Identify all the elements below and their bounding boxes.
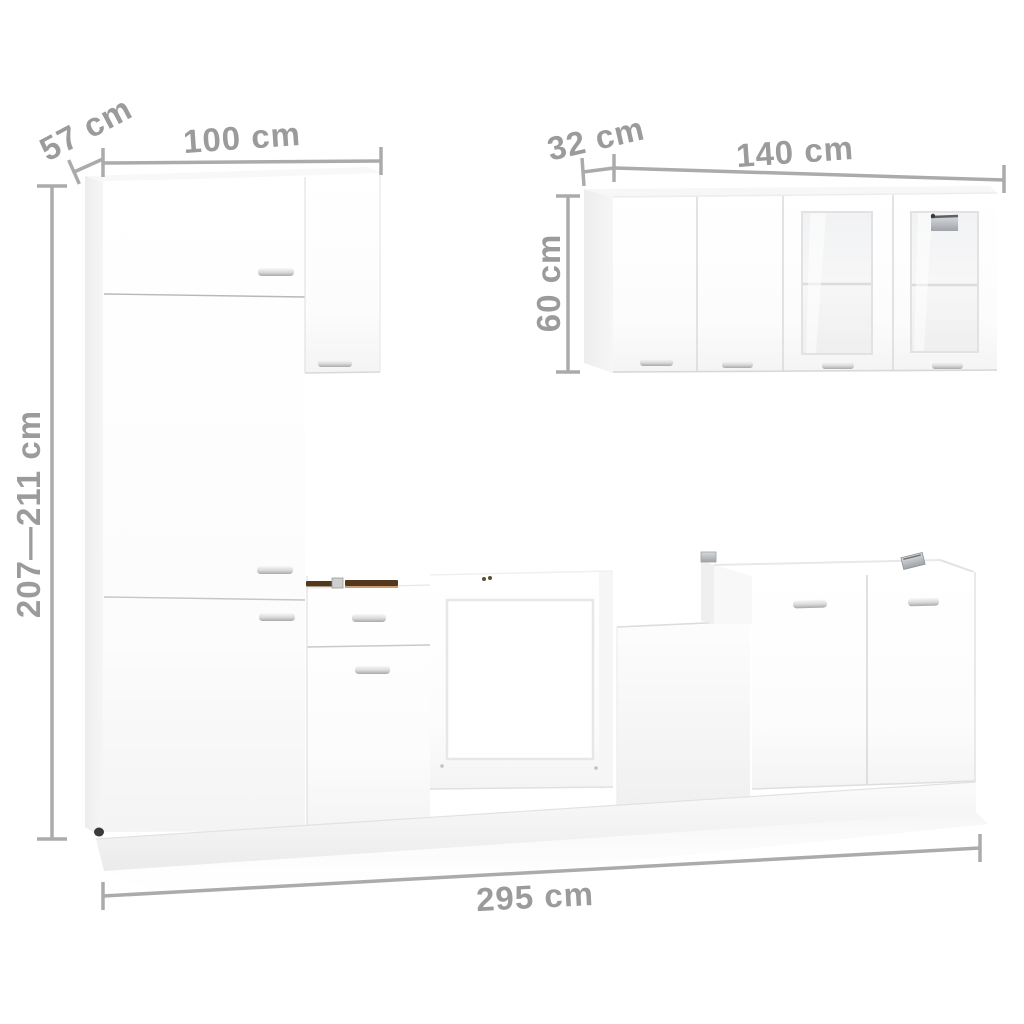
door-handle: [722, 361, 753, 368]
sink-unit-left-side-top: [714, 565, 752, 624]
small-wall-cabinet-front: [305, 174, 380, 373]
kitchen-set-illustration: [0, 0, 1024, 1024]
wall-cabinet-set: [584, 186, 997, 373]
worktop-bracket: [901, 553, 925, 570]
oven-housing-unit: [430, 571, 613, 789]
worktop-bracket: [701, 552, 716, 562]
door-handle: [932, 362, 963, 369]
oven-opening: [447, 600, 593, 759]
small-wall-cabinet-bottom-edge: [305, 372, 380, 373]
door-handle: [259, 613, 295, 621]
upper-wall-cabinet-small: [305, 174, 380, 373]
fixing-bracket: [332, 578, 343, 588]
tall-cabinet-side-panel: [85, 176, 103, 839]
sink-unit-front: [752, 572, 975, 789]
dim-label-tall-height: 207—211 cm: [10, 410, 48, 618]
oven-unit-right-shade: [599, 571, 613, 789]
exposed-board-edge: [306, 581, 333, 587]
dim-label-total-width: 295 cm: [475, 875, 595, 919]
mid-panel-unit: [617, 621, 750, 807]
door-handle: [318, 360, 352, 367]
sink-unit-rear-left-post: [701, 560, 714, 624]
dim-line-57: [74, 159, 103, 172]
screw-hole: [488, 576, 492, 580]
glass-door-left: [802, 212, 872, 354]
base-drawer-unit: [306, 573, 430, 831]
drawer-handle: [352, 614, 386, 622]
shelf-pin-hole: [440, 764, 444, 768]
wall-cabinet-side-panel: [584, 189, 613, 373]
door-handle: [793, 600, 827, 609]
drawer-unit-front: [307, 573, 430, 831]
product-dimension-diagram: 57 cm 100 cm 32 cm 140 cm 60 cm 207—211 …: [0, 0, 1024, 1024]
door-handle: [822, 362, 854, 369]
door-handle: [908, 598, 939, 607]
dim-tick: [582, 158, 584, 186]
screw-hole: [482, 577, 486, 581]
dim-label-wall-height: 60 cm: [530, 234, 568, 333]
hinge-bracket: [931, 216, 958, 231]
door-handle: [640, 359, 673, 366]
mid-panel-front: [617, 621, 750, 807]
hinge-pin: [931, 214, 935, 218]
cabinet-foot: [94, 828, 104, 837]
door-handle: [355, 666, 390, 674]
shelf-pin-hole: [594, 766, 598, 770]
door-handle: [258, 268, 294, 276]
door-handle: [257, 566, 293, 574]
dim-line-32: [583, 168, 614, 172]
sink-unit-right-top-edge: [940, 560, 974, 572]
glass-door-right: [911, 212, 978, 352]
dim-line-100: [103, 161, 381, 163]
exposed-board-edge: [345, 580, 398, 586]
